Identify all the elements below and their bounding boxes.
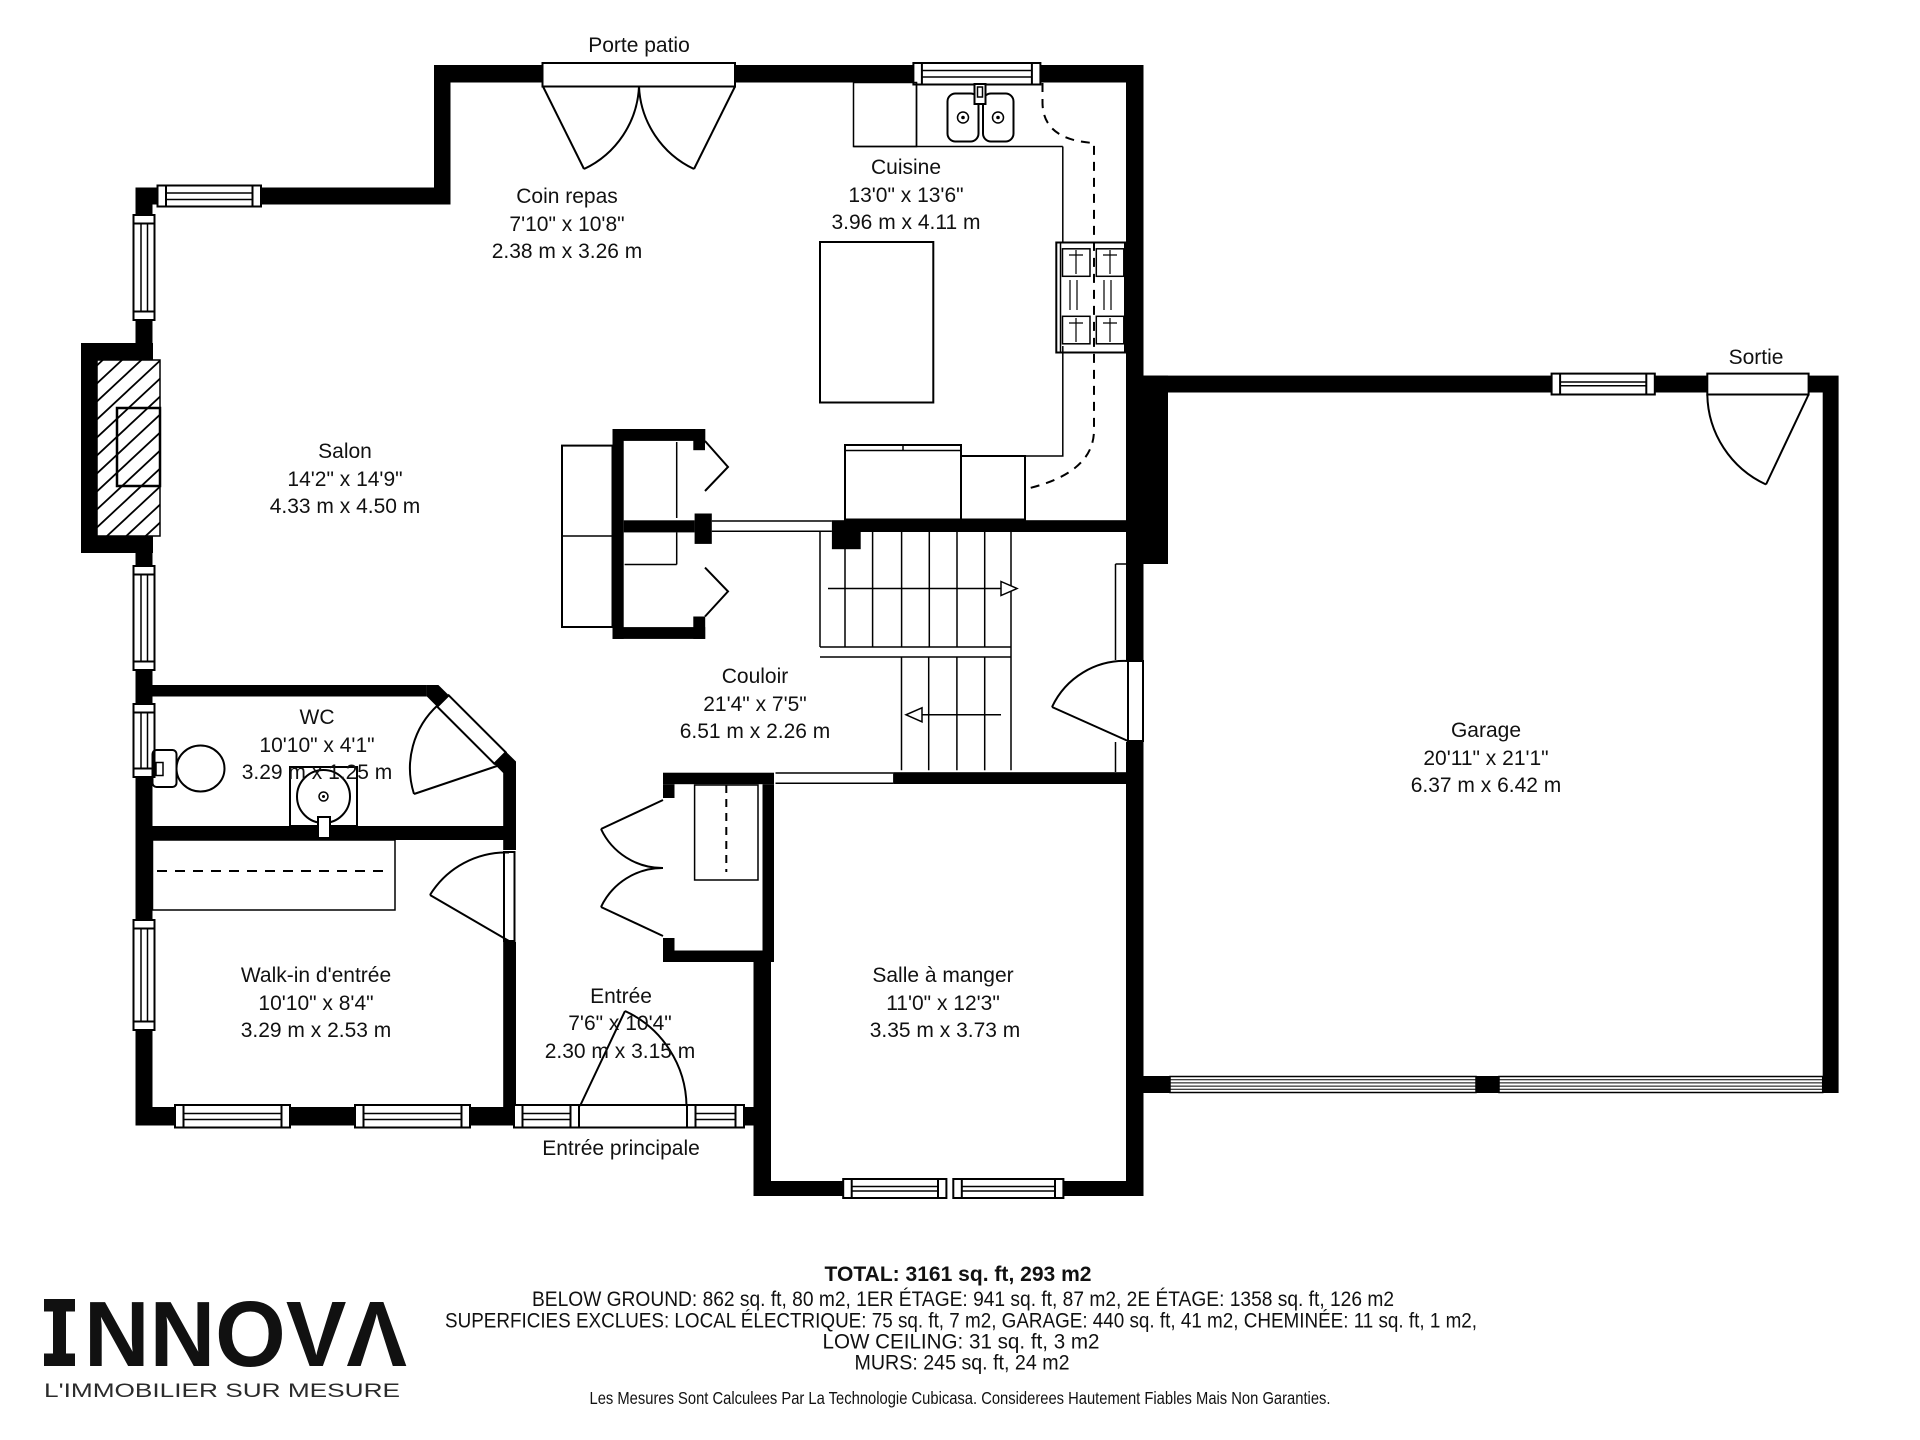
svg-text:Salon: Salon	[318, 440, 372, 463]
svg-text:Les Mesures Sont Calculees Par: Les Mesures Sont Calculees Par La Techno…	[590, 1388, 1331, 1408]
svg-text:11'0" x 12'3": 11'0" x 12'3"	[886, 992, 1000, 1015]
svg-text:BELOW GROUND: 862 sq. ft, 80 m: BELOW GROUND: 862 sq. ft, 80 m2, 1ER ÉTA…	[532, 1286, 1394, 1311]
svg-text:14'2" x 14'9": 14'2" x 14'9"	[287, 468, 402, 491]
svg-text:L'IMMOBILIER SUR MESURE: L'IMMOBILIER SUR MESURE	[44, 1380, 400, 1402]
svg-text:2.30 m x 3.15 m: 2.30 m x 3.15 m	[545, 1040, 696, 1063]
svg-text:20'11" x 21'1": 20'11" x 21'1"	[1423, 747, 1548, 770]
svg-text:21'4" x 7'5": 21'4" x 7'5"	[703, 693, 807, 716]
svg-text:Coin repas: Coin repas	[516, 185, 618, 208]
svg-text:7'6" x 10'4": 7'6" x 10'4"	[568, 1012, 672, 1035]
svg-text:6.37 m x 6.42 m: 6.37 m x 6.42 m	[1411, 774, 1562, 797]
svg-text:13'0" x 13'6": 13'0" x 13'6"	[848, 184, 963, 207]
svg-text:NNOVΛ: NNOVΛ	[84, 1282, 407, 1386]
svg-text:Walk-in d'entrée: Walk-in d'entrée	[241, 964, 391, 987]
svg-text:4.33 m x 4.50 m: 4.33 m x 4.50 m	[270, 495, 421, 518]
svg-text:MURS: 245 sq. ft, 24 m2: MURS: 245 sq. ft, 24 m2	[855, 1351, 1070, 1375]
svg-text:Salle à manger: Salle à manger	[872, 964, 1013, 987]
svg-text:3.35 m x 3.73 m: 3.35 m x 3.73 m	[870, 1019, 1021, 1042]
svg-text:TOTAL: 3161 sq. ft, 293 m2: TOTAL: 3161 sq. ft, 293 m2	[825, 1262, 1092, 1286]
svg-text:Sortie: Sortie	[1729, 346, 1784, 369]
svg-text:6.51 m x 2.26 m: 6.51 m x 2.26 m	[680, 720, 831, 743]
svg-text:Entrée principale: Entrée principale	[542, 1137, 700, 1160]
svg-text:Entrée: Entrée	[590, 985, 652, 1008]
svg-text:Couloir: Couloir	[722, 665, 789, 688]
svg-text:10'10" x 8'4": 10'10" x 8'4"	[258, 992, 373, 1015]
svg-text:Garage: Garage	[1451, 719, 1521, 742]
svg-text:10'10" x 4'1": 10'10" x 4'1"	[259, 734, 374, 757]
svg-text:3.29 m x 1.25 m: 3.29 m x 1.25 m	[242, 761, 393, 784]
svg-text:3.96 m x 4.11 m: 3.96 m x 4.11 m	[831, 211, 980, 234]
svg-text:WC: WC	[300, 706, 335, 729]
svg-text:Porte patio: Porte patio	[588, 34, 690, 57]
svg-text:Cuisine: Cuisine	[871, 156, 941, 179]
svg-text:3.29 m x 2.53 m: 3.29 m x 2.53 m	[241, 1019, 392, 1042]
svg-text:2.38 m x 3.26 m: 2.38 m x 3.26 m	[492, 240, 643, 263]
svg-text:7'10" x 10'8": 7'10" x 10'8"	[509, 213, 624, 236]
